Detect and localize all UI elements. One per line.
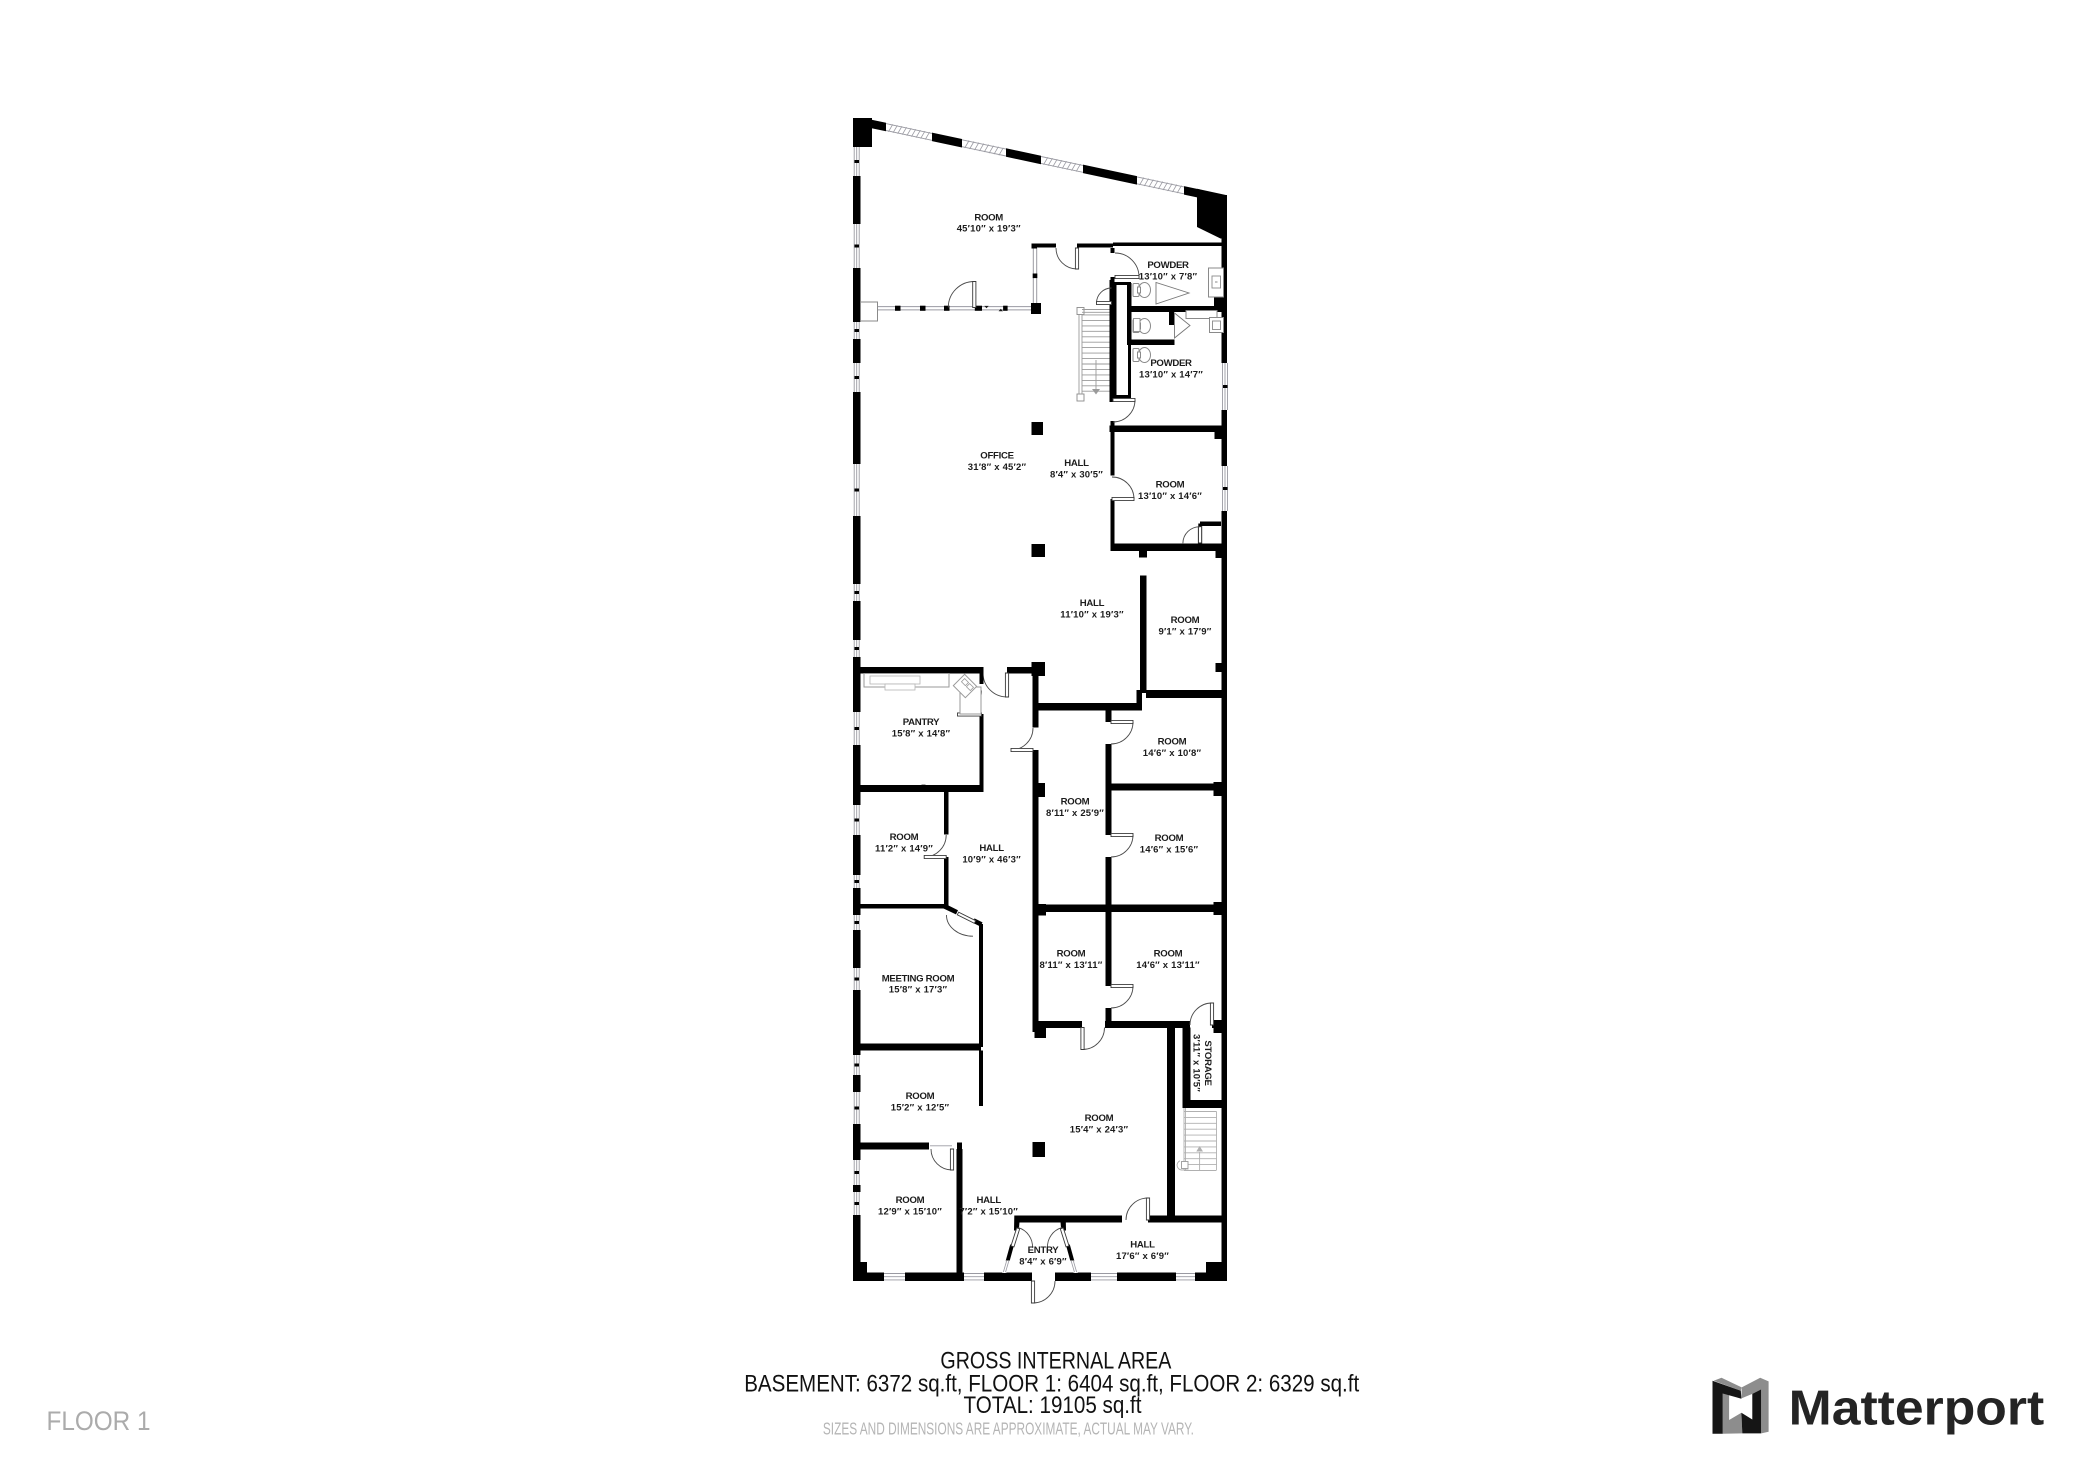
svg-text:15′2″ x 12′5″: 15′2″ x 12′5″ (891, 1102, 950, 1113)
svg-text:8′4″ x 30′5″: 8′4″ x 30′5″ (1050, 470, 1103, 481)
svg-text:ROOM: ROOM (1155, 833, 1184, 844)
svg-text:8′11″ x 13′11″: 8′11″ x 13′11″ (1040, 960, 1103, 971)
svg-text:MEETING ROOM: MEETING ROOM (882, 973, 955, 984)
svg-text:14′6″ x 13′11″: 14′6″ x 13′11″ (1136, 960, 1200, 971)
svg-text:8′4″ x 6′9″: 8′4″ x 6′9″ (1019, 1256, 1067, 1267)
svg-text:HALL: HALL (1080, 598, 1105, 609)
svg-text:15′8″ x 14′8″: 15′8″ x 14′8″ (892, 728, 951, 739)
svg-text:ROOM: ROOM (1154, 949, 1183, 960)
svg-text:ROOM: ROOM (1085, 1113, 1114, 1124)
svg-text:HALL: HALL (979, 843, 1004, 854)
svg-text:PANTRY: PANTRY (903, 717, 940, 728)
svg-text:HALL: HALL (1130, 1240, 1155, 1251)
svg-text:HALL: HALL (1064, 458, 1089, 469)
svg-text:13′10″ x 14′7″: 13′10″ x 14′7″ (1139, 369, 1203, 380)
svg-text:ROOM: ROOM (1171, 615, 1200, 626)
svg-text:14′6″ x 10′8″: 14′6″ x 10′8″ (1143, 748, 1202, 759)
svg-text:ROOM: ROOM (906, 1091, 935, 1102)
svg-text:15′8″ x 17′3″: 15′8″ x 17′3″ (889, 985, 948, 996)
svg-text:15′4″ x 24′3″: 15′4″ x 24′3″ (1070, 1125, 1129, 1136)
svg-text:Matterport: Matterport (1789, 1382, 2045, 1436)
svg-text:POWDER: POWDER (1147, 260, 1189, 271)
svg-text:OFFICE: OFFICE (980, 451, 1014, 462)
svg-text:7′2″ x 15′10″: 7′2″ x 15′10″ (959, 1206, 1018, 1217)
svg-text:ROOM: ROOM (890, 832, 919, 843)
svg-text:SIZES AND DIMENSIONS ARE APPRO: SIZES AND DIMENSIONS ARE APPROXIMATE, AC… (823, 1419, 1194, 1439)
svg-text:ROOM: ROOM (896, 1195, 925, 1206)
svg-text:9′1″ x 17′9″: 9′1″ x 17′9″ (1158, 626, 1211, 637)
svg-text:POWDER: POWDER (1150, 358, 1192, 369)
svg-text:STORAGE: STORAGE (1202, 1040, 1213, 1086)
svg-text:ROOM: ROOM (1057, 949, 1086, 960)
svg-text:ROOM: ROOM (1156, 480, 1185, 491)
svg-text:45′10″ x 19′3″: 45′10″ x 19′3″ (957, 224, 1021, 235)
svg-text:14′6″ x 15′6″: 14′6″ x 15′6″ (1140, 844, 1199, 855)
svg-text:ENTRY: ENTRY (1028, 1245, 1060, 1256)
svg-text:10′9″ x 46′3″: 10′9″ x 46′3″ (962, 854, 1021, 865)
svg-text:TOTAL: 19105 sq.ft: TOTAL: 19105 sq.ft (964, 1392, 1142, 1419)
svg-text:ROOM: ROOM (1061, 797, 1090, 808)
svg-text:ROOM: ROOM (1158, 737, 1187, 748)
svg-text:17′6″ x 6′9″: 17′6″ x 6′9″ (1116, 1251, 1169, 1262)
svg-text:12′9″ x 15′10″: 12′9″ x 15′10″ (878, 1206, 942, 1217)
svg-text:HALL: HALL (977, 1195, 1002, 1206)
svg-text:13′10″ x 14′6″: 13′10″ x 14′6″ (1138, 491, 1202, 502)
svg-text:31′8″ x 45′2″: 31′8″ x 45′2″ (968, 462, 1027, 473)
svg-text:11′2″ x 14′9″: 11′2″ x 14′9″ (875, 843, 933, 854)
svg-text:3′11″ x 10′5″: 3′11″ x 10′5″ (1191, 1034, 1202, 1092)
svg-text:8′11″ x 25′9″: 8′11″ x 25′9″ (1046, 808, 1104, 819)
svg-text:ROOM: ROOM (974, 212, 1003, 223)
svg-text:13′10″ x 7′8″: 13′10″ x 7′8″ (1139, 271, 1198, 282)
svg-text:FLOOR 1: FLOOR 1 (47, 1406, 151, 1436)
svg-text:11′10″ x 19′3″: 11′10″ x 19′3″ (1060, 609, 1124, 620)
